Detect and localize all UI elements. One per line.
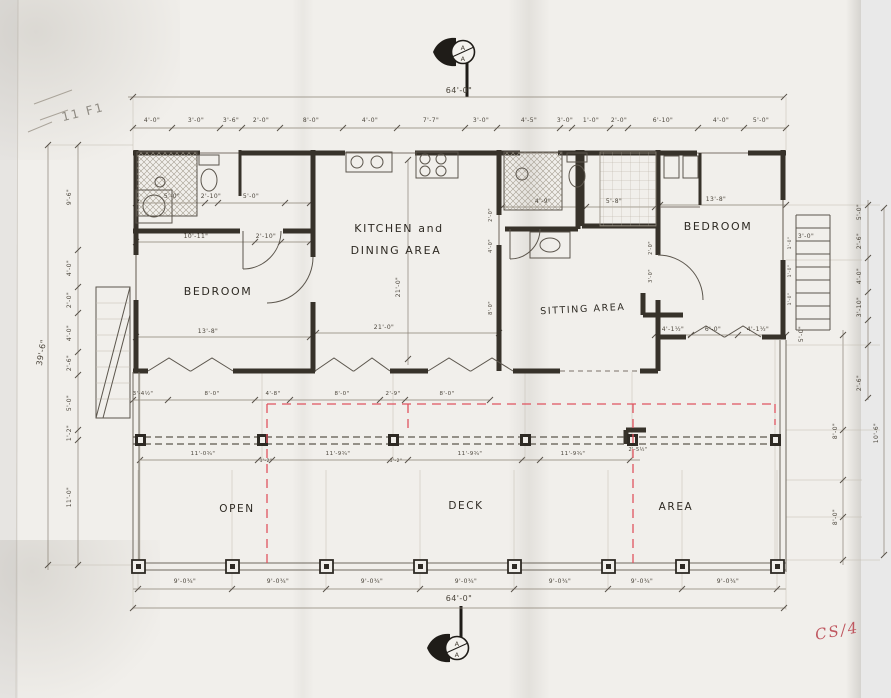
dim-left-3: 2'-0" — [66, 292, 73, 308]
closet-shelving — [600, 152, 656, 226]
floorplan-drawing: BEDROOMKITCHEN andDINING AREASITTING ARE… — [0, 0, 891, 698]
dim-bottom-7: 9'-0¾" — [717, 578, 739, 585]
dim-left-4: 4'-0" — [66, 325, 73, 341]
marker-top-letter-1: A — [461, 44, 466, 52]
dim-top-7: 7'-7" — [423, 117, 439, 124]
dim-sit-2: 6'-0" — [705, 326, 721, 333]
room-label-kitchen-1: KITCHEN and — [354, 222, 443, 235]
dim-left-8: 11'-0" — [66, 487, 73, 507]
dim-right-9: 8'-0" — [832, 509, 839, 525]
dim-right-7: 3'-0" — [798, 233, 814, 240]
dim-right-4: 3'-10" — [856, 297, 863, 317]
dim-right-6: 5'-0" — [798, 326, 805, 342]
dim-bath2-2: 5'-8" — [606, 198, 622, 205]
dim-beam-4: 11'-9¾" — [561, 451, 586, 457]
dim-top-6: 4'-0" — [362, 117, 378, 124]
dim-right-3: 4'-0" — [856, 268, 863, 284]
dim-left-7: 1'-2" — [66, 425, 73, 441]
room-label-bedroom-right: BEDROOM — [684, 220, 753, 233]
dim-mid-4: 8'-0" — [334, 391, 349, 397]
dim-top-4: 2'-0" — [253, 117, 269, 124]
dim-top-5: 8'-0" — [303, 117, 319, 124]
dim-right-8: 8'-0" — [832, 423, 839, 439]
dim-br2-side-2: 3'-0" — [648, 269, 654, 283]
dim-right-5: 2'-6" — [856, 375, 863, 391]
dim-mid-2: 8'-0" — [204, 391, 219, 397]
marker-top-letter-2: A — [461, 55, 466, 63]
dim-bath1-3: 5'-0" — [243, 193, 259, 200]
dim-sit-1: 4'-1½" — [662, 326, 684, 333]
dim-mid-3: 4'-8" — [265, 391, 280, 397]
dim-kitchen-h: 21'-0" — [395, 277, 402, 297]
dim-bath1-1: 5'-0" — [164, 193, 180, 200]
dim-left-6: 5'-0" — [66, 395, 73, 411]
dim-left-5: 2'-6" — [66, 355, 73, 371]
dim-top-2: 3'-0" — [188, 117, 204, 124]
dim-top-10: 3'-0" — [557, 117, 573, 124]
floorplan-scan: BEDROOMKITCHEN andDINING AREASITTING ARE… — [0, 0, 891, 698]
dim-sit-3: 4'-1½" — [747, 326, 769, 333]
dim-top-15: 5'-0" — [753, 117, 769, 124]
dim-top-14: 4'-0" — [713, 117, 729, 124]
dim-stair-2: 1'-0" — [787, 265, 793, 278]
dim-top-12: 2'-0" — [611, 117, 627, 124]
dim-beam-6: 1'-2" — [260, 458, 273, 464]
dim-bath1-2: 2'-10" — [201, 193, 221, 200]
dim-kitchen-w: 21'-0" — [374, 324, 394, 331]
dim-mid-1: 3'-4½" — [133, 390, 154, 397]
dim-top-11: 1'-0" — [583, 117, 599, 124]
dim-stair-1: 1'-0" — [787, 237, 793, 250]
room-label-bedroom-left: BEDROOM — [184, 285, 253, 298]
dim-right-10: 10'-6" — [873, 423, 880, 443]
dim-bottom-2: 9'-0¾" — [267, 578, 289, 585]
dim-stair-3: 1'-0" — [787, 293, 793, 306]
dim-top-overall: 64'-0" — [446, 86, 472, 95]
dim-bottom-5: 9'-0¾" — [549, 578, 571, 585]
scan-edge-strip — [861, 0, 891, 698]
dim-bedroom-left: 13'-8" — [198, 328, 218, 335]
dim-beam-2: 11'-9¾" — [326, 451, 351, 457]
marker-bottom-letter-1: A — [455, 640, 460, 648]
dim-top-9: 4'-5" — [521, 117, 537, 124]
dim-beam-5: 2'-5½" — [628, 446, 647, 453]
room-label-deck: DECK — [448, 500, 483, 512]
dim-bath2-1: 4'-9" — [535, 198, 551, 205]
dim-hall-3: 8'-0" — [488, 301, 494, 315]
dim-top-8: 3'-0" — [473, 117, 489, 124]
dim-bottom-4: 9'-0¾" — [455, 578, 477, 585]
dim-bath1-5: 2'-10" — [256, 233, 276, 240]
dim-hall-1: 2'-0" — [488, 208, 494, 222]
dim-beam-1: 11'-0¾" — [191, 451, 216, 457]
dim-left-2: 4'-0" — [66, 260, 73, 276]
shower-left — [137, 152, 197, 216]
dim-right-1: 5'-0" — [856, 204, 863, 220]
shower-center — [504, 152, 562, 210]
dim-bottom-overall: 64'-0" — [446, 594, 472, 603]
dim-right-2: 2'-6" — [856, 233, 863, 249]
dim-bottom-3: 9'-0¾" — [361, 578, 383, 585]
dim-top-13: 6'-10" — [653, 117, 673, 124]
dim-bottom-6: 9'-0¾" — [631, 578, 653, 585]
marker-bottom-letter-2: A — [455, 651, 460, 659]
dim-bath1-4: 10'-11" — [184, 233, 209, 240]
dim-bottom-1: 9'-0¾" — [174, 578, 196, 585]
dim-bedroom-right: 13'-8" — [706, 196, 726, 203]
dim-hall-2: 4'-0" — [488, 239, 494, 253]
dim-br2-side-1: 2'-0" — [648, 241, 654, 255]
dim-top-3: 3'-6" — [223, 117, 239, 124]
room-label-open: OPEN — [219, 503, 255, 515]
dim-beam-7: 1'-2" — [390, 458, 403, 464]
dim-mid-5: 2'-9" — [385, 391, 400, 397]
dim-mid-6: 8'-0" — [439, 391, 454, 397]
room-label-area: AREA — [659, 501, 694, 513]
dim-left-1: 9'-6" — [66, 189, 73, 205]
dim-beam-3: 11'-9¾" — [458, 451, 483, 457]
dim-top-1: 4'-0" — [144, 117, 160, 124]
room-label-kitchen-2: DINING AREA — [351, 244, 442, 257]
